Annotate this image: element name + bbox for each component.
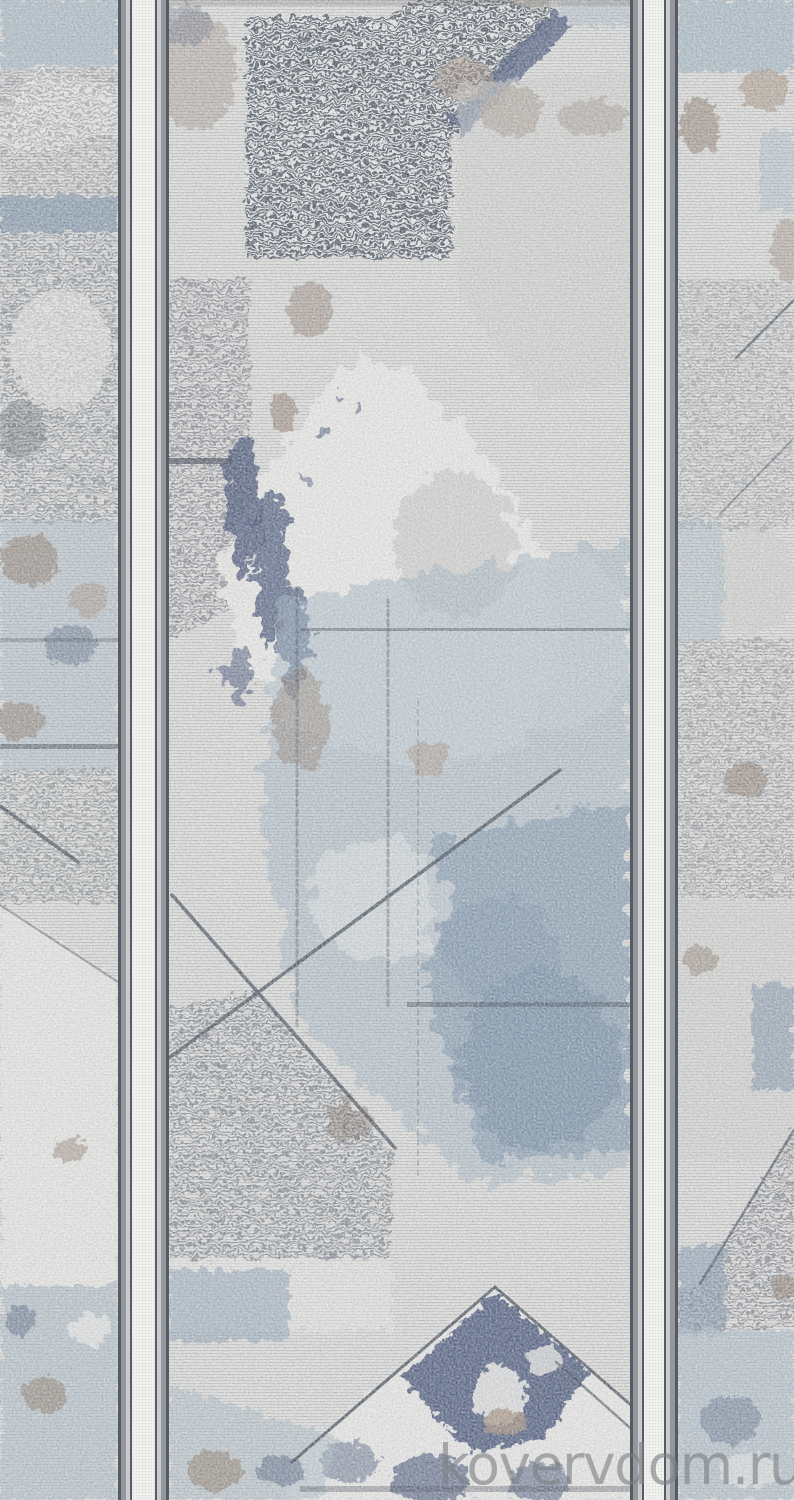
carpet-photo: kovervdom.ru	[0, 0, 794, 1500]
band-gray-stripe	[161, 0, 166, 1500]
band-inner-line	[155, 0, 157, 1500]
band-edge-line	[675, 0, 678, 1500]
band-light-stripe	[126, 0, 130, 1500]
band-dot-texture	[132, 0, 155, 1500]
band-gray-stripe	[670, 0, 675, 1500]
band-dot-texture	[644, 0, 664, 1500]
band-inner-line	[130, 0, 132, 1500]
band-light-stripe	[157, 0, 161, 1500]
band-inner-line	[664, 0, 666, 1500]
carpet-pattern-svg	[0, 0, 794, 1500]
band-inner-line	[642, 0, 644, 1500]
right-border-band	[630, 0, 678, 1500]
band-edge-line	[166, 0, 169, 1500]
band-light-stripe	[666, 0, 670, 1500]
band-gray-stripe	[121, 0, 126, 1500]
band-light-stripe	[638, 0, 642, 1500]
band-gray-stripe	[633, 0, 638, 1500]
band-edge-line	[118, 0, 121, 1500]
left-border-band	[118, 0, 169, 1500]
band-edge-line	[630, 0, 633, 1500]
